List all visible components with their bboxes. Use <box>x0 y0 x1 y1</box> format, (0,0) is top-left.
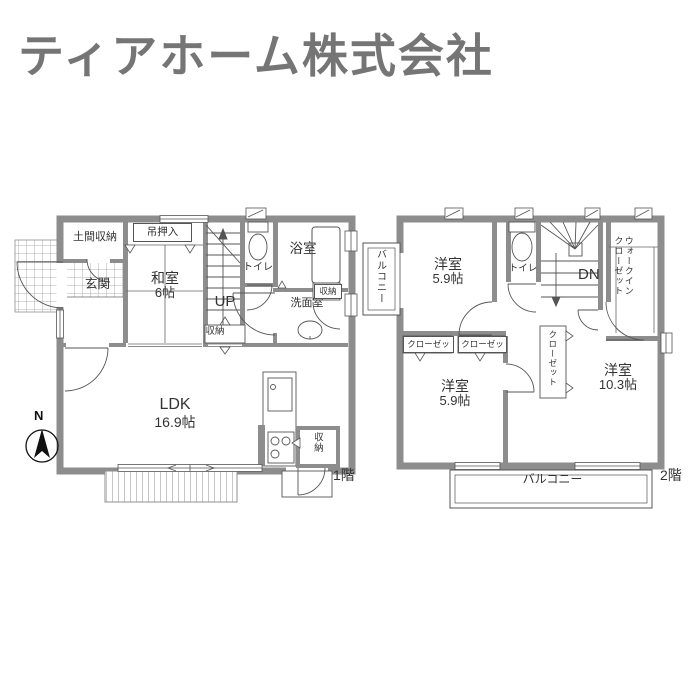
company-title: ティアホーム株式会社 <box>18 20 494 86</box>
room-bedroom3: 洋室 10.3帖 <box>572 362 664 393</box>
room-bedroom1-name: 洋室 <box>407 256 489 272</box>
storage-under-stairs-label: 収納 <box>196 327 234 338</box>
room-bedroom1-size: 5.9帖 <box>407 272 489 287</box>
floor1-label: 1階 <box>333 467 355 483</box>
room-genkan: 玄関 <box>70 277 125 291</box>
kitchen-counter <box>263 372 296 466</box>
storage-kitchen-label: 収納 <box>311 432 322 466</box>
room-toilet-1f: トイレ <box>238 262 278 274</box>
floorplan-2f-linework <box>360 205 700 515</box>
room-wic-label: ウォークイン クローゼット <box>613 236 634 314</box>
room-washitsu-size: 6帖 <box>125 286 205 301</box>
floor2-label: 2階 <box>660 467 682 483</box>
floorplan-page: ティアホーム株式会社 <box>0 0 700 700</box>
room-bedroom2: 洋室 5.9帖 <box>412 378 498 409</box>
room-washitsu: 和室 6帖 <box>125 270 205 301</box>
balcony-bottom-label: バルコニー <box>455 473 650 487</box>
room-washitsu-name: 和室 <box>125 270 205 286</box>
toilet-fixture-1f <box>248 222 268 260</box>
back-porch <box>282 464 332 497</box>
room-tsuri-oshiire: 吊押入 <box>133 223 192 242</box>
room-bedroom3-size: 10.3帖 <box>572 378 664 393</box>
wic-line1: ウォークイン <box>624 236 634 296</box>
room-bedroom3-name: 洋室 <box>572 362 664 378</box>
room-toilet-2f: トイレ <box>506 264 540 275</box>
closet-b-label: クローゼット <box>458 336 507 353</box>
room-bedroom2-size: 5.9帖 <box>412 394 498 409</box>
stairs-down-label: DN <box>578 266 600 283</box>
wic-line2: クローゼット <box>613 236 623 296</box>
balcony-left-label: バルコニー <box>374 249 386 313</box>
room-ldk: LDK 16.9帖 <box>120 396 230 430</box>
room-ldk-name: LDK <box>120 396 230 414</box>
closet-a-label: クローゼット <box>403 336 454 353</box>
compass-icon <box>18 410 66 465</box>
closet-mid-label: クローゼット <box>547 330 557 394</box>
wood-deck <box>105 471 237 502</box>
room-bedroom2-name: 洋室 <box>412 378 498 394</box>
room-doma-storage: 土間収納 <box>64 231 126 244</box>
stairs-up-label: UP <box>205 293 245 310</box>
room-ldk-size: 16.9帖 <box>120 414 230 430</box>
washroom-sink <box>298 321 322 339</box>
room-bedroom1: 洋室 5.9帖 <box>407 256 489 287</box>
kitchen-wall-stub <box>258 425 265 466</box>
room-bath: 浴室 <box>281 241 325 257</box>
storage-washroom-label: 収納 <box>314 284 342 299</box>
